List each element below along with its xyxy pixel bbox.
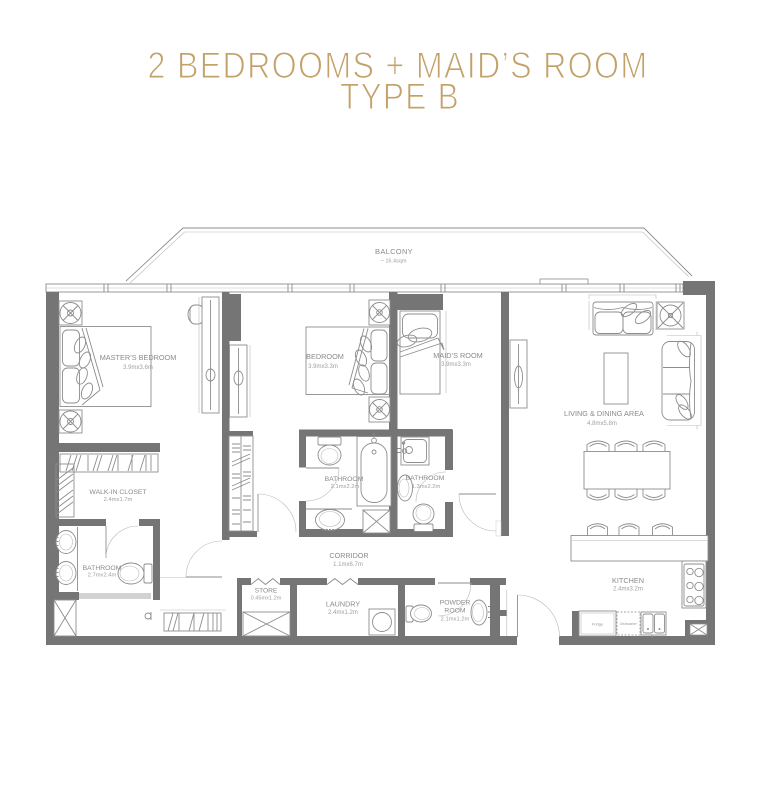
svg-text:BEDROOM: BEDROOM [306,352,344,361]
svg-text:2.4mx3.2m: 2.4mx3.2m [613,587,643,593]
svg-text:2.1mx2.2m: 2.1mx2.2m [331,484,360,490]
svg-text:KITCHEN: KITCHEN [612,576,644,585]
svg-text:1.1mx6.7m: 1.1mx6.7m [333,562,363,568]
svg-text:2.7mx2.4m: 2.7mx2.4m [88,573,117,579]
svg-text:CORRIDOR: CORRIDOR [329,551,368,560]
svg-text:2.4mx1.7m: 2.4mx1.7m [104,497,133,503]
svg-text:2.1mx1.2m: 2.1mx1.2m [441,617,470,623]
svg-text:LIVING & DINING AREA: LIVING & DINING AREA [564,409,644,418]
svg-text:3.9mx3.6m: 3.9mx3.6m [123,365,153,371]
svg-text:Dishwasher: Dishwasher [620,622,638,626]
svg-text:POWDER: POWDER [440,600,471,607]
svg-text:3.9mx3.3m: 3.9mx3.3m [308,364,338,370]
svg-text:MAID’S ROOM: MAID’S ROOM [433,351,482,360]
svg-text:LAUNDRY: LAUNDRY [326,600,360,609]
svg-text:1.3mx2.2m: 1.3mx2.2m [412,484,441,490]
svg-text:4.8mx5.8m: 4.8mx5.8m [587,421,617,427]
svg-text:3.9mx3.3m: 3.9mx3.3m [441,362,471,368]
svg-text:0.45mx1.2m: 0.45mx1.2m [251,596,282,602]
svg-text:~ 16.4sqm: ~ 16.4sqm [381,259,407,265]
svg-text:STORE: STORE [255,588,278,595]
svg-text:BATHROOM: BATHROOM [83,565,122,572]
svg-text:ROOM: ROOM [444,608,465,615]
svg-text:TYPE B: TYPE B [340,76,460,117]
svg-text:WALK-IN CLOSET: WALK-IN CLOSET [89,489,146,496]
svg-text:BATHROOM: BATHROOM [406,475,445,482]
svg-text:MASTER’S BEDROOM: MASTER’S BEDROOM [100,353,177,362]
svg-text:BATHROOM: BATHROOM [325,476,364,483]
svg-text:Fridge: Fridge [592,622,604,627]
svg-text:2.4mx1.2m: 2.4mx1.2m [328,610,358,616]
svg-text:BALCONY: BALCONY [375,247,413,256]
